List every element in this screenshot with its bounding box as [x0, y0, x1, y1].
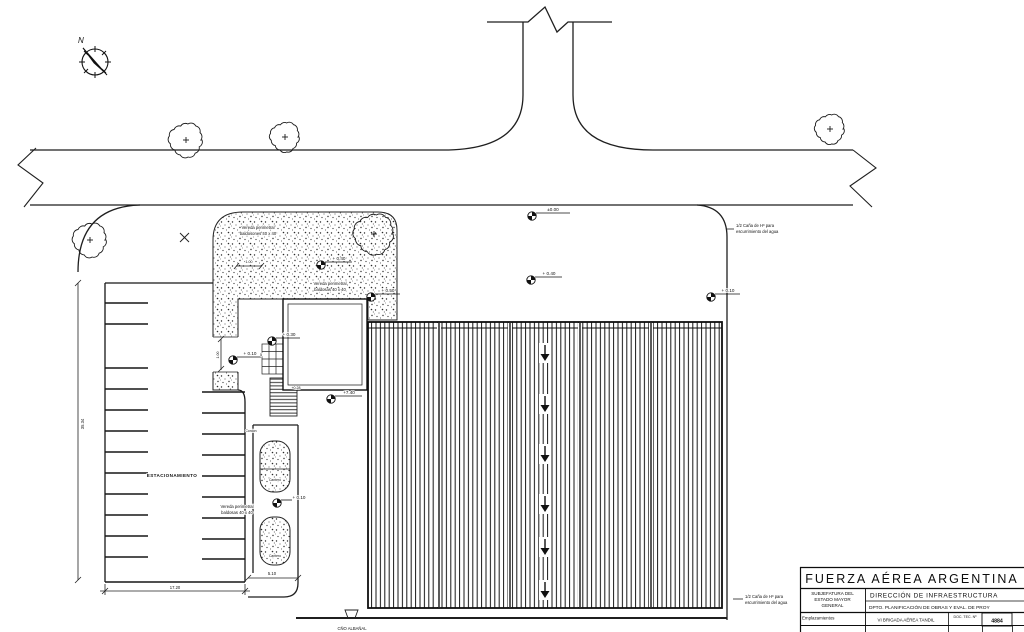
vereda-note-1-line-2: baldosones 40 x 40 [240, 231, 277, 236]
road-vertical-right-edge [573, 22, 853, 150]
title-empl-value: VI BRIGADA AÉREA TANDIL [878, 618, 935, 623]
level-plus-030-stairs: + 0.30 [283, 332, 296, 337]
drain-note-1-line-1: 1/2 Caña de Hº para [736, 223, 775, 228]
trees [72, 114, 844, 258]
planter-2-label: Cantero [269, 554, 281, 558]
hangar-roof [368, 322, 722, 608]
title-org: FUERZA AÉREA ARGENTINA [805, 571, 1019, 586]
level-plus-010-east: + 0.10 [722, 288, 735, 293]
road-break-left [18, 148, 43, 207]
planter-1-label: Cantero [269, 478, 281, 482]
dim-planter-column: 5.10 [268, 571, 277, 576]
level-0-00: ±0.00 [547, 207, 559, 212]
dim-walk-width: 1.00 [216, 352, 220, 359]
boundary-curve-right [697, 205, 727, 237]
annex-building [283, 299, 367, 390]
vereda-note-2-line-1: Vereda perimetral [313, 281, 346, 286]
title-doc-label: DOC. TEC. Nº [953, 615, 977, 619]
drain-note-2-line-1: 1/2 Caña de Hº para [745, 594, 784, 599]
north-label: N [78, 36, 84, 45]
north-compass: N [78, 36, 111, 78]
survey-x-marker [180, 233, 189, 242]
title-dpto: DPTO. PLANIFICACIÓN DE OBRAS Y EVAL. DE … [869, 604, 990, 611]
title-block: FUERZA AÉREA ARGENTINA SUBJEFATURA DEL E… [800, 567, 1024, 632]
level-plus-740: +7.40 [343, 390, 355, 395]
title-direction: DIRECCIÓN DE INFRAESTRUCTURA [870, 591, 998, 600]
planters: Cantero Cantero Cordón [245, 429, 290, 565]
title-sub-line-2: ESTADO MAYOR [814, 597, 851, 602]
curb-label: Cordón [245, 429, 256, 433]
title-sub-line-3: GENERAL [822, 603, 844, 608]
vereda-note-3-line-1: Vereda perimetral [220, 504, 253, 509]
vereda-note-3-line-2: baldosas 40 x 40 [221, 510, 253, 515]
site-plan-canvas: ESTACIONAMIENTO Cantero Cantero Cordón N… [0, 0, 1024, 632]
stair-count-label: 5 [260, 353, 262, 357]
cad-site-plan: ESTACIONAMIENTO Cantero Cantero Cordón N… [0, 0, 1024, 632]
sewer-label: CÑO ALBAÑAL [337, 626, 367, 631]
title-doc-value: 4884 [991, 619, 1003, 625]
level-plus-040-garden: + 0.40 [333, 256, 346, 261]
hangar [345, 322, 722, 618]
road-top-end-break [487, 7, 612, 32]
level-plus-040-road: + 0.40 [543, 271, 556, 276]
dim-parking-height: 35.34 [80, 418, 85, 429]
road-break-right [850, 150, 876, 207]
planter-1 [260, 441, 290, 492]
dim-strip-width: 1.00 [246, 260, 253, 264]
drain-note-1-line-2: escurrimiento del agua [736, 229, 779, 234]
vereda-note-1-line-1: Vereda perimetral [241, 225, 274, 230]
driveway-curve-left [78, 205, 140, 272]
parking-label: ESTACIONAMIENTO [147, 473, 198, 478]
drain-note-2-line-2: escurrimiento del agua [745, 600, 788, 605]
road-vertical-left-edge [30, 22, 523, 150]
ramp-level-label: +0.28 [291, 386, 300, 390]
dim-parking-width: 17.20 [170, 585, 181, 590]
vereda-note-2-line-2: baldosas 40 x 40 [314, 287, 346, 292]
level-plus-050-annex: + 0.50 [382, 288, 395, 293]
title-sub-line-1: SUBJEFATURA DEL [811, 591, 854, 596]
level-plus-010-walk: + 0.10 [244, 351, 257, 356]
sewer-outlet-symbol [345, 610, 358, 618]
title-empl-label: Emplazamientos [802, 616, 835, 621]
level-plus-010-planters: + 0.10 [293, 495, 306, 500]
